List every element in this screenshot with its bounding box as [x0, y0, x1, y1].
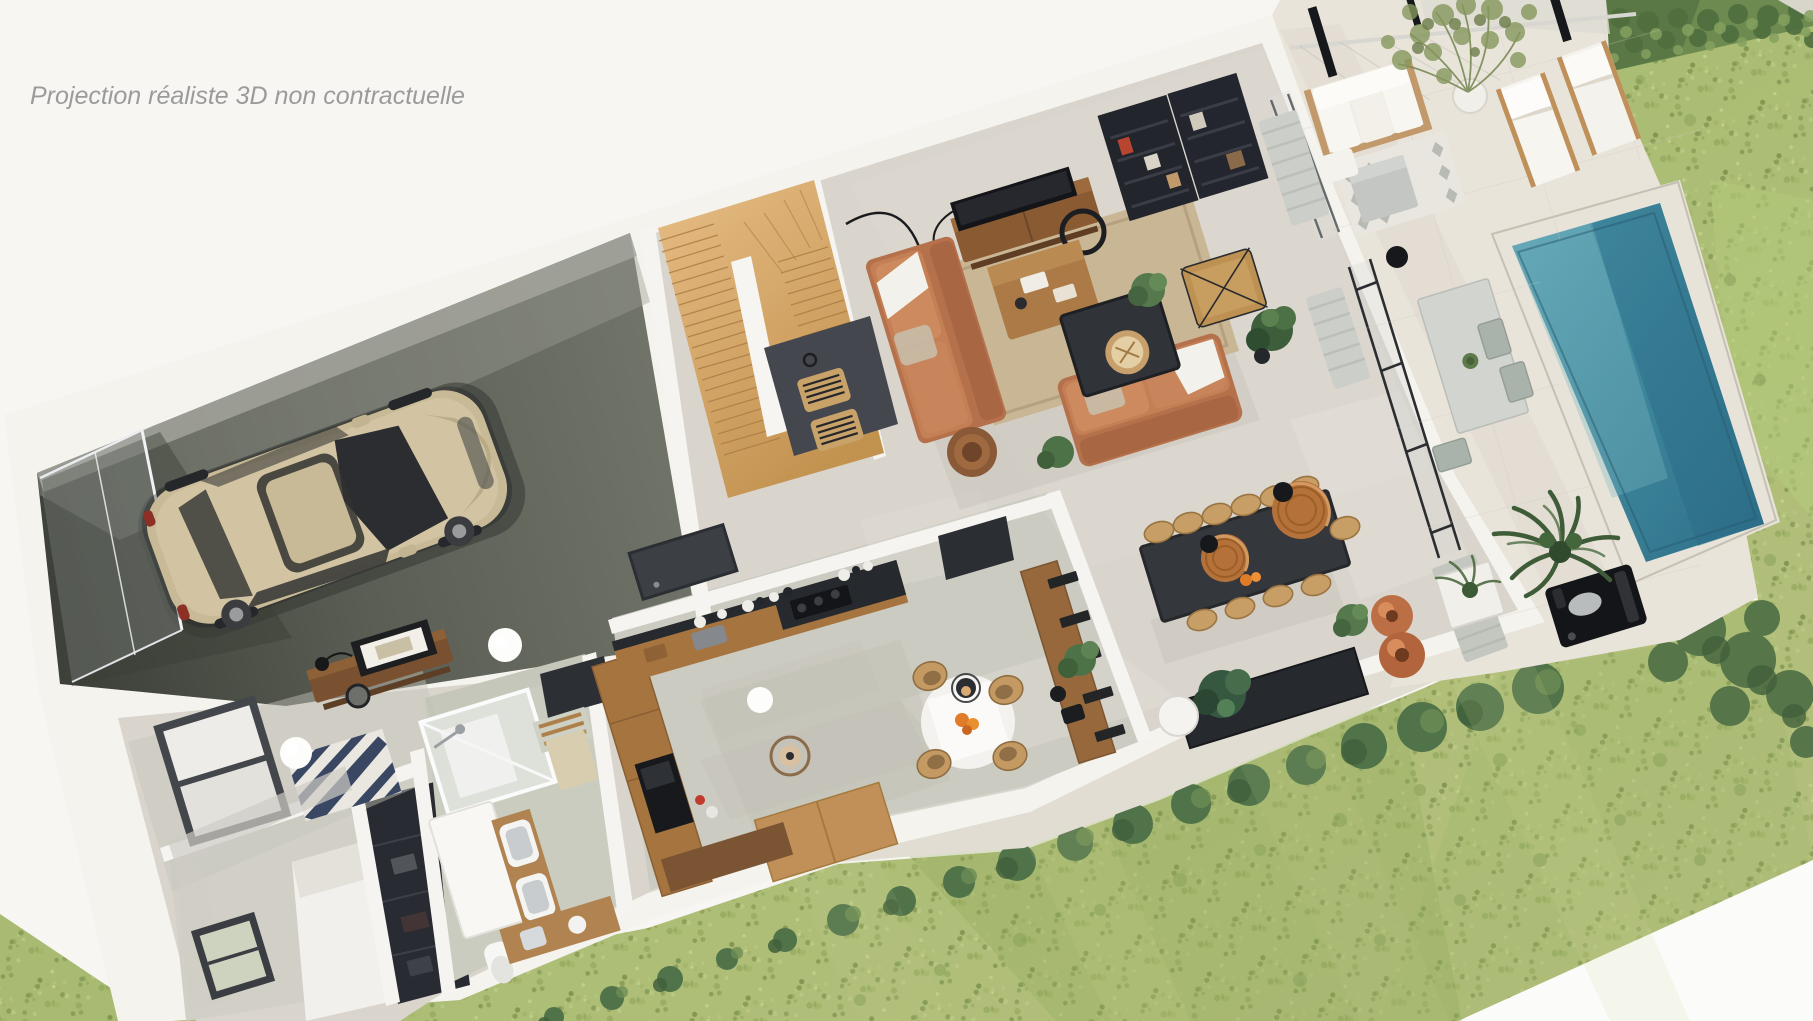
svg-text:Projection réaliste 3D non con: Projection réaliste 3D non contractuelle	[30, 82, 465, 110]
